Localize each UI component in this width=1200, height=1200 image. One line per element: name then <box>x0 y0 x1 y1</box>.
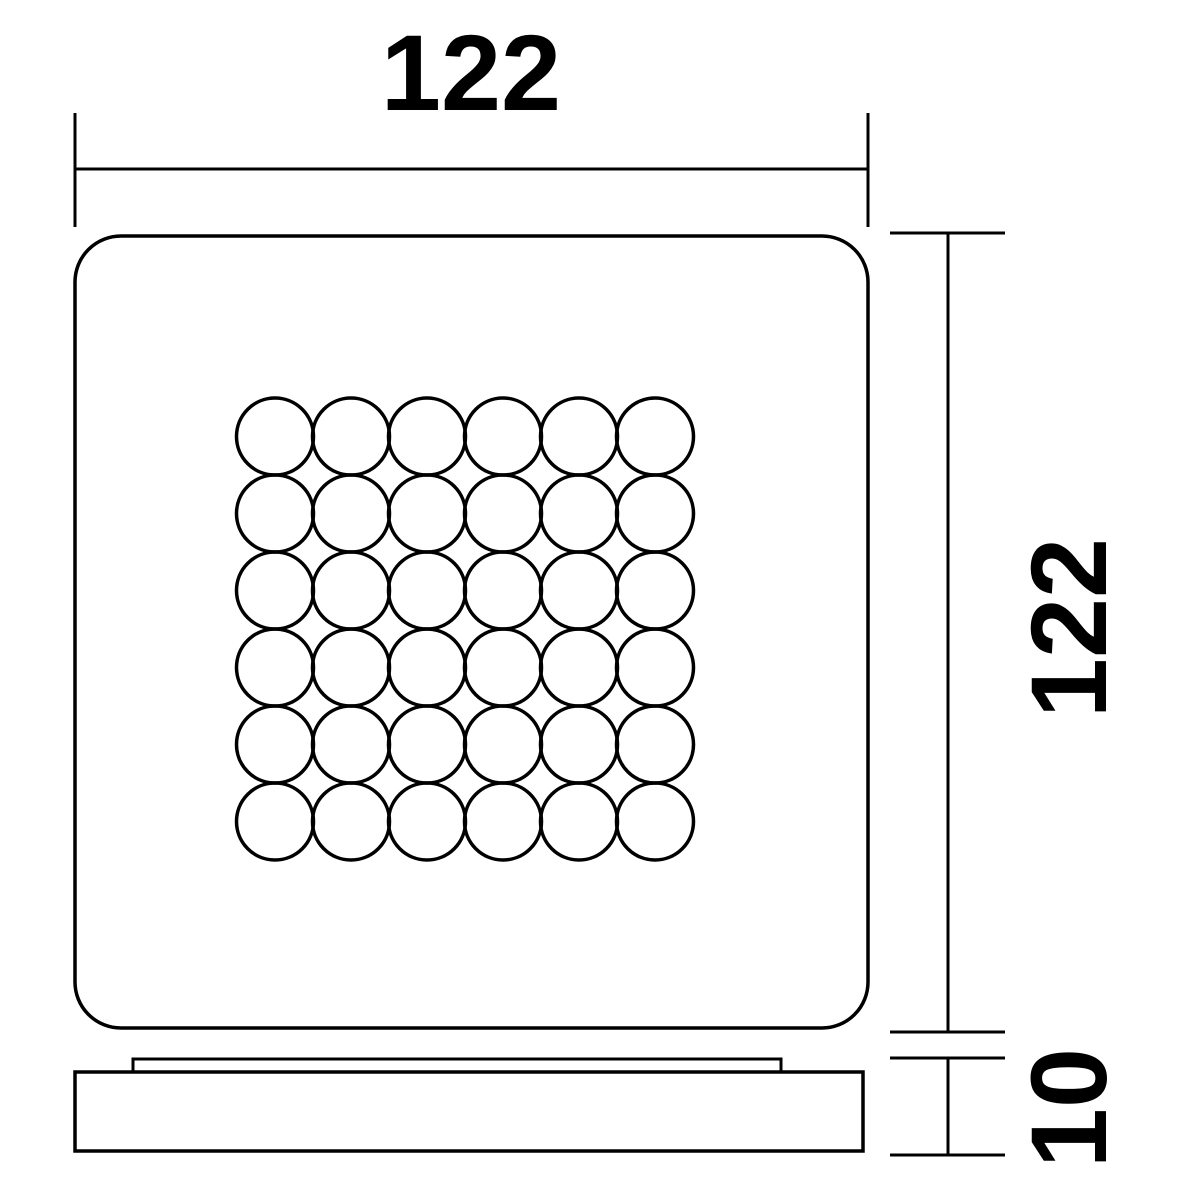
led-circle <box>237 552 314 629</box>
led-circle <box>389 475 466 552</box>
led-circle <box>389 629 466 706</box>
led-circle <box>465 629 542 706</box>
led-circle <box>313 552 390 629</box>
side-view-strip <box>133 1059 781 1072</box>
height-dimension <box>890 233 1005 1032</box>
thickness-dimension <box>890 1058 1005 1155</box>
led-circle <box>617 706 694 783</box>
led-circle <box>541 475 618 552</box>
width-dimension-label: 122 <box>381 12 561 133</box>
led-circle <box>237 783 314 860</box>
led-circle <box>465 475 542 552</box>
led-circle <box>313 783 390 860</box>
led-circle <box>465 398 542 475</box>
led-circle <box>617 629 694 706</box>
led-circle <box>541 783 618 860</box>
led-circle <box>465 552 542 629</box>
thickness-dimension-label: 10 <box>1008 1048 1129 1168</box>
led-circle <box>389 783 466 860</box>
led-circle <box>541 398 618 475</box>
led-circle <box>237 706 314 783</box>
led-circle <box>237 629 314 706</box>
led-circle <box>465 706 542 783</box>
height-dimension-label: 122 <box>1008 538 1129 718</box>
led-circle <box>541 552 618 629</box>
led-circle <box>313 475 390 552</box>
led-circle <box>389 398 466 475</box>
led-circle <box>237 475 314 552</box>
panel-front-outline <box>75 236 868 1028</box>
led-circle <box>617 783 694 860</box>
led-circle <box>617 398 694 475</box>
led-circle <box>313 398 390 475</box>
led-circle <box>465 783 542 860</box>
led-grid <box>237 398 694 860</box>
dimension-drawing: 122 122 10 <box>0 0 1200 1200</box>
led-circle <box>617 552 694 629</box>
led-circle <box>541 629 618 706</box>
led-circle <box>313 706 390 783</box>
led-circle <box>237 398 314 475</box>
led-circle <box>389 706 466 783</box>
led-circle <box>389 552 466 629</box>
drawing-svg: 122 122 10 <box>0 0 1200 1200</box>
led-circle <box>541 706 618 783</box>
led-circle <box>617 475 694 552</box>
side-view-base <box>75 1072 863 1151</box>
led-circle <box>313 629 390 706</box>
